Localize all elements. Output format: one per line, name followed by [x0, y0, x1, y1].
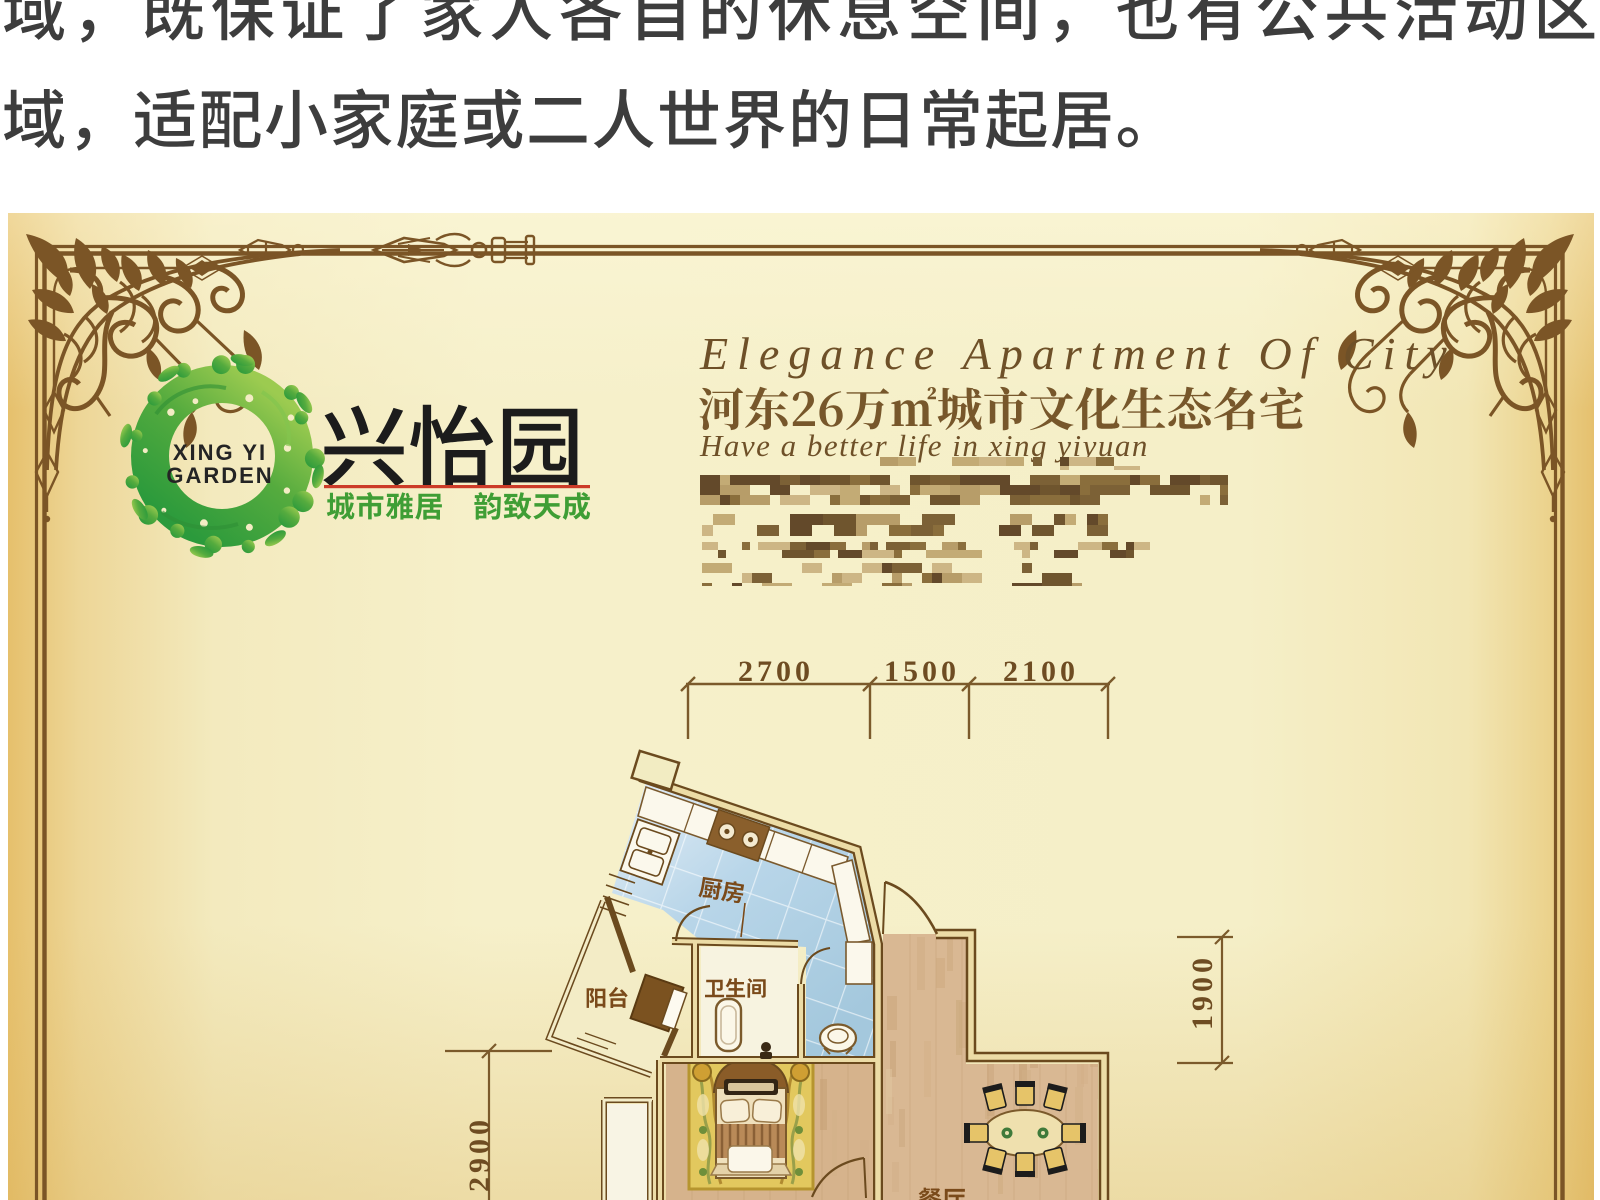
svg-text:1900: 1900 [1186, 954, 1219, 1030]
svg-text:2700: 2700 [738, 655, 814, 688]
svg-text:2100: 2100 [1003, 655, 1079, 688]
svg-text:XING YI: XING YI [173, 440, 267, 465]
svg-text:Elegance Apartment Of City: Elegance Apartment Of City [699, 328, 1456, 379]
svg-text:1500: 1500 [884, 655, 960, 688]
svg-text:2900: 2900 [463, 1116, 496, 1192]
svg-text:GARDEN: GARDEN [166, 463, 273, 488]
